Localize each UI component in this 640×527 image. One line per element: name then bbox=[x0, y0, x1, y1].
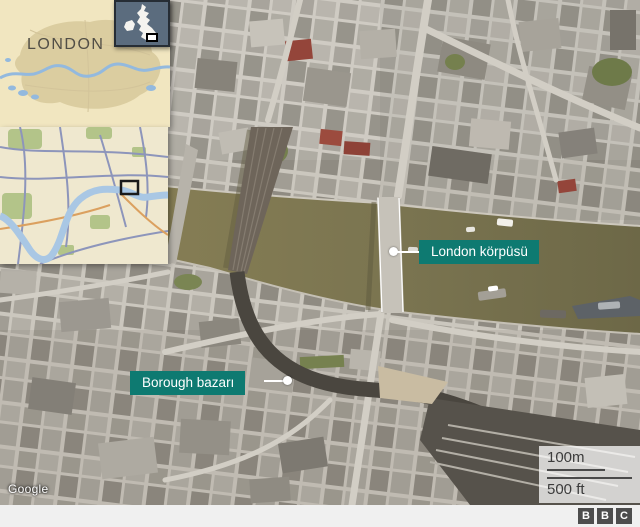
london-locator-rectangle bbox=[147, 34, 157, 41]
bbc-logo-block-b1: B bbox=[578, 508, 594, 524]
london-bridge-label: London körpüsü bbox=[419, 240, 539, 264]
borough-market-label: Borough bazarı bbox=[130, 371, 245, 395]
scale-metric-bar bbox=[547, 469, 605, 471]
inset-street-map bbox=[0, 127, 168, 264]
scale-imperial-bar bbox=[547, 477, 632, 479]
map-scale: 100m 500 ft bbox=[539, 446, 640, 503]
bbc-logo-block-c: C bbox=[616, 508, 632, 524]
scale-imperial-label: 500 ft bbox=[547, 481, 640, 498]
inset-uk-locator-map bbox=[114, 0, 170, 47]
bbc-logo-block-b2: B bbox=[597, 508, 613, 524]
borough-market-marker-dot bbox=[283, 376, 292, 385]
bbc-map-graphic: LONDON bbox=[0, 0, 640, 527]
google-attribution: Google bbox=[8, 482, 49, 496]
bbc-logo: B B C bbox=[578, 508, 632, 524]
inset-london-title: LONDON bbox=[27, 36, 104, 54]
footer-strip: B B C bbox=[0, 505, 640, 527]
london-bridge-leader-line bbox=[395, 251, 419, 253]
scale-metric-label: 100m bbox=[547, 449, 640, 466]
borough-market-leader-line bbox=[264, 380, 284, 382]
